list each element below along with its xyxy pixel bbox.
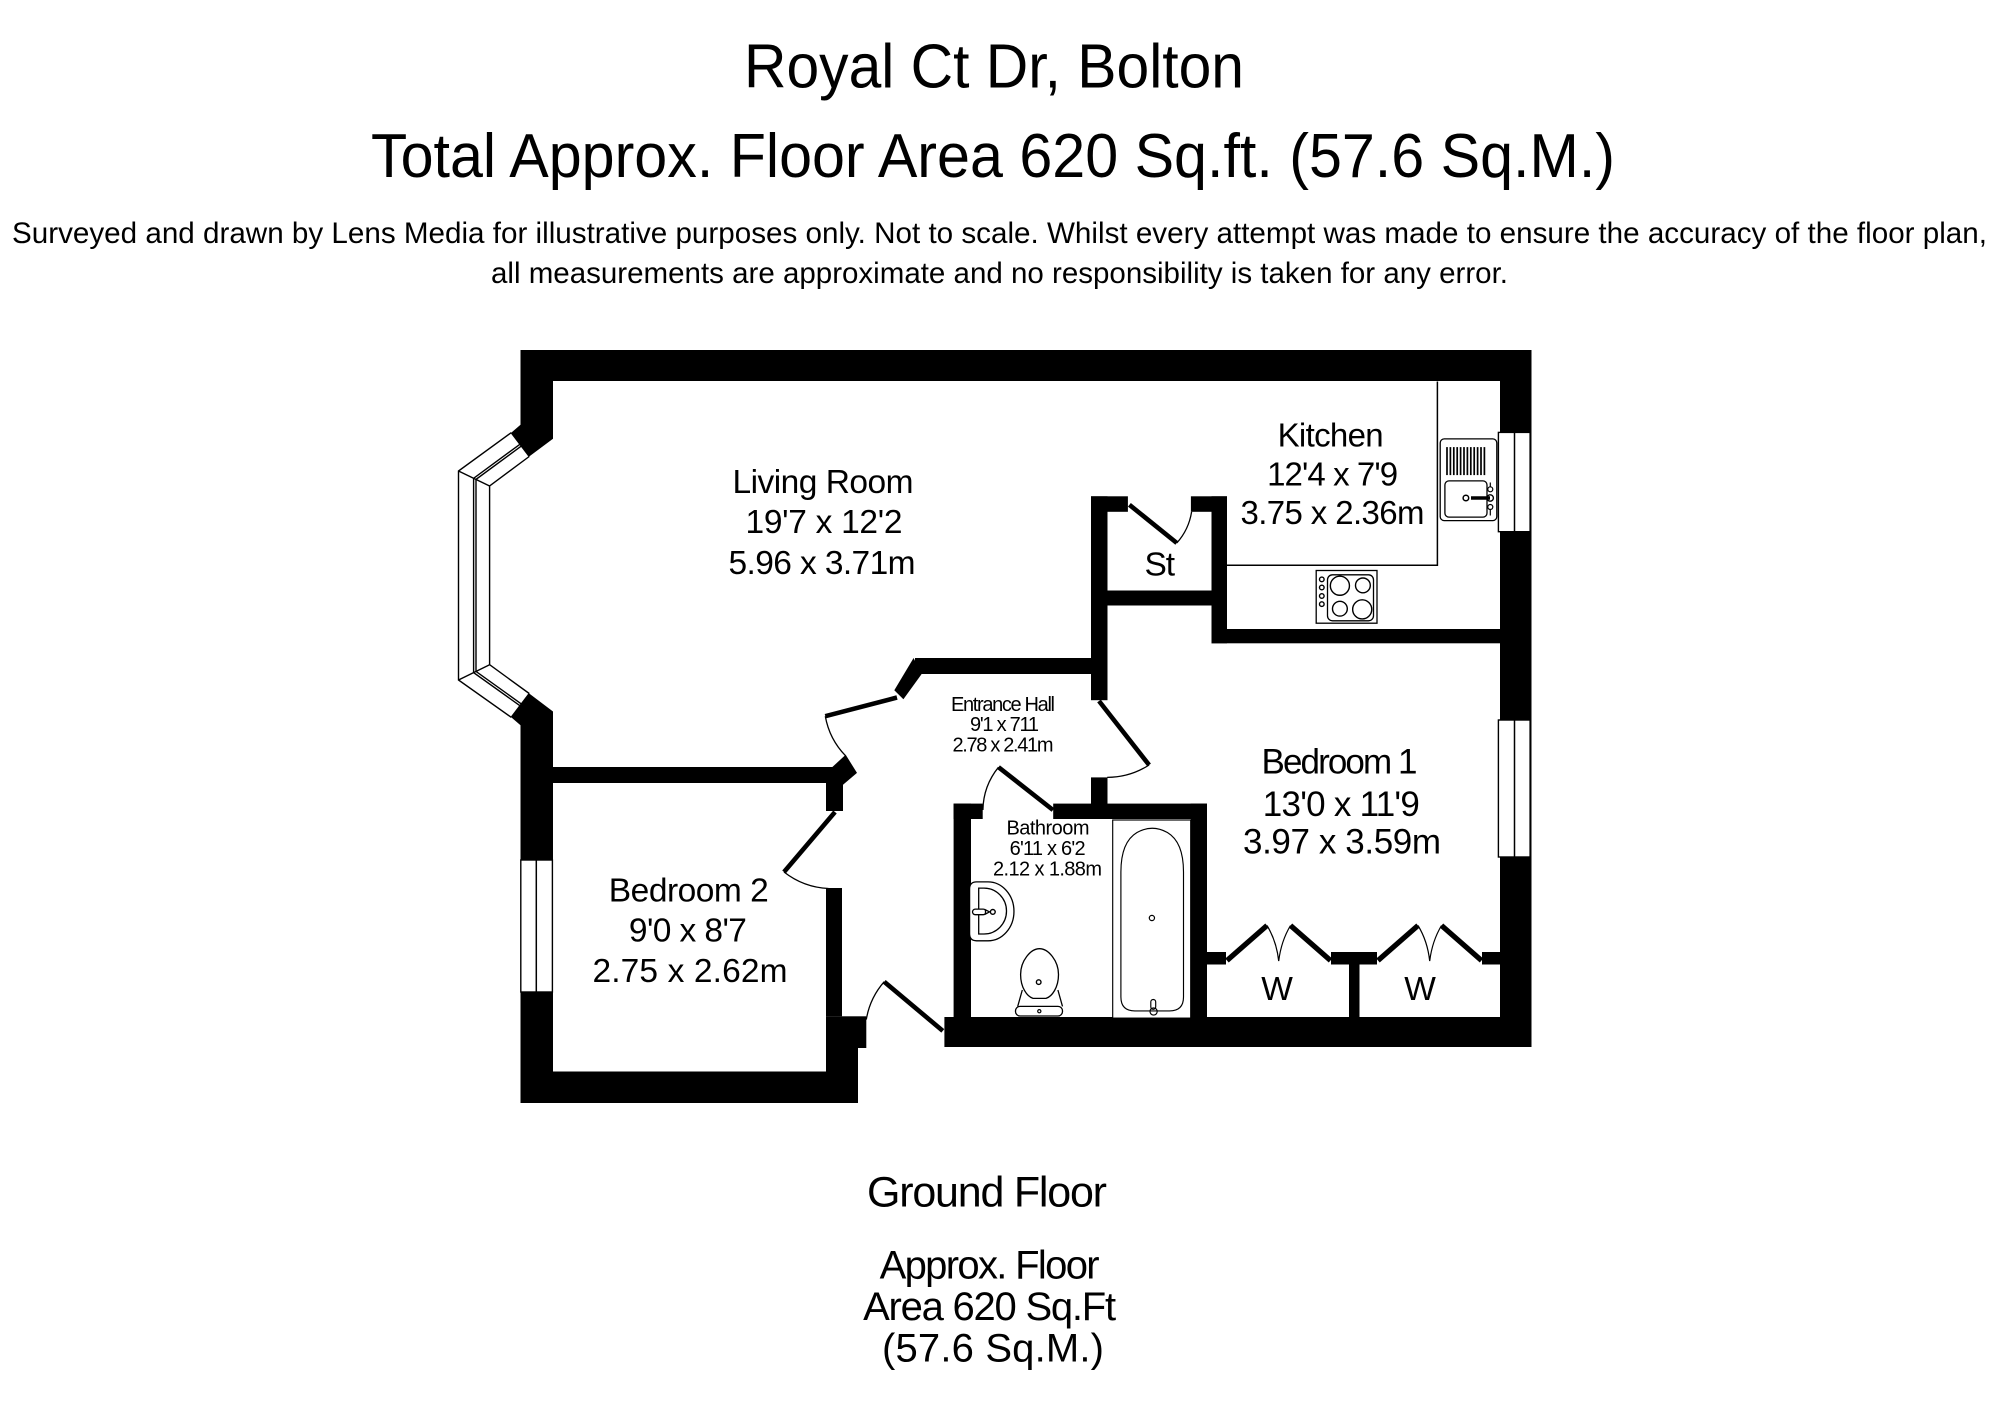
svg-text:St: St: [1145, 547, 1176, 584]
svg-text:Ground Floor: Ground Floor: [867, 1169, 1107, 1217]
svg-text:19'7 x 12'2: 19'7 x 12'2: [746, 504, 903, 541]
svg-text:all measurements are approxima: all measurements are approximate and no …: [491, 257, 1508, 290]
svg-text:3.75 x 2.36m: 3.75 x 2.36m: [1241, 494, 1425, 531]
svg-text:2.12 x 1.88m: 2.12 x 1.88m: [993, 858, 1102, 880]
svg-text:Bedroom 2: Bedroom 2: [609, 872, 769, 909]
svg-text:9'1 x 711: 9'1 x 711: [970, 714, 1039, 736]
svg-text:Royal Ct Dr, Bolton: Royal Ct Dr, Bolton: [744, 33, 1244, 102]
svg-text:Bedroom 1: Bedroom 1: [1262, 743, 1418, 782]
svg-text:2.75 x 2.62m: 2.75 x 2.62m: [593, 953, 788, 990]
svg-text:Area 620 Sq.Ft: Area 620 Sq.Ft: [863, 1285, 1116, 1329]
svg-text:Bathroom: Bathroom: [1007, 817, 1090, 839]
svg-text:12'4 x 7'9: 12'4 x 7'9: [1267, 455, 1398, 492]
svg-text:Kitchen: Kitchen: [1278, 417, 1384, 454]
svg-text:Total Approx. Floor Area 620 S: Total Approx. Floor Area 620 Sq.ft. (57.…: [371, 122, 1615, 191]
svg-text:Surveyed and drawn by Lens Med: Surveyed and drawn by Lens Media for ill…: [12, 217, 1987, 250]
svg-text:Approx. Floor: Approx. Floor: [880, 1244, 1100, 1288]
svg-text:13'0 x 11'9: 13'0 x 11'9: [1263, 785, 1420, 824]
svg-text:Living Room: Living Room: [733, 464, 914, 501]
svg-text:(57.6 Sq.M.): (57.6 Sq.M.): [882, 1327, 1104, 1371]
svg-text:3.97 x 3.59m: 3.97 x 3.59m: [1243, 823, 1441, 862]
svg-text:Entrance Hall: Entrance Hall: [951, 694, 1055, 716]
svg-text:5.96 x 3.71m: 5.96 x 3.71m: [729, 545, 916, 582]
svg-text:6'11 x 6'2: 6'11 x 6'2: [1010, 838, 1086, 860]
svg-text:W: W: [1404, 971, 1436, 1008]
svg-text:2.78 x 2.41m: 2.78 x 2.41m: [953, 734, 1054, 756]
svg-text:W: W: [1261, 971, 1293, 1008]
svg-text:9'0 x 8'7: 9'0 x 8'7: [629, 913, 747, 950]
